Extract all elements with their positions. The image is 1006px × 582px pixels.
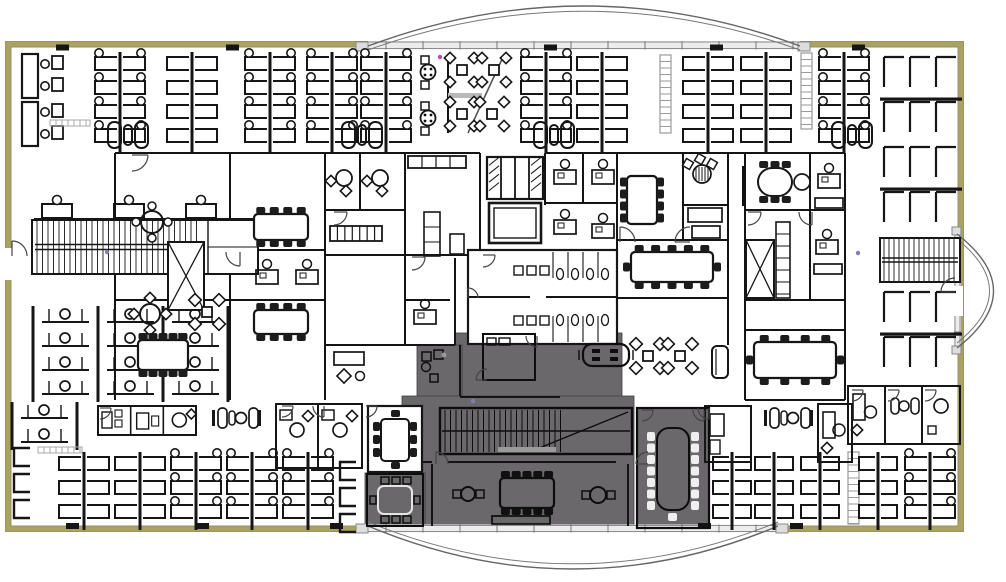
cad-artifact-dot [438,55,442,59]
cad-artifact-dot [105,250,109,254]
service-elevator [489,203,541,243]
wall-tick [544,45,557,51]
wall-tick [196,523,209,529]
focus-rooms [98,406,196,435]
wall-tick [226,45,239,51]
stairs [880,238,960,282]
shelving-strip [660,55,671,133]
balcony-anchor [952,346,961,354]
glass-wall-top [368,41,800,50]
balcony-anchor [776,524,788,533]
conference-table [138,333,188,377]
floor-plan-svg [0,0,1006,582]
stairs [32,220,258,274]
conference-table [623,245,721,289]
cad-artifact-dot [471,399,475,403]
wall-tick [790,523,803,529]
shelving-strip [801,53,812,129]
shelf-bar [742,166,746,206]
floor-plan-viewport [0,0,1006,582]
glass-wall-bottom [368,525,778,533]
conference-table [620,176,664,224]
wall-opening [953,286,963,316]
balcony-anchor [952,227,961,235]
meeting-room-white [368,406,422,472]
highlighted-zone[interactable] [365,473,425,528]
wall-tick [710,45,723,51]
conference-table [746,335,844,385]
elevator-bank [487,157,543,199]
conference-table [254,207,308,247]
shaft-x-brace [746,240,774,298]
cad-artifact-dot [856,251,860,255]
wall-tick [56,45,69,51]
wall-tick [66,523,79,529]
